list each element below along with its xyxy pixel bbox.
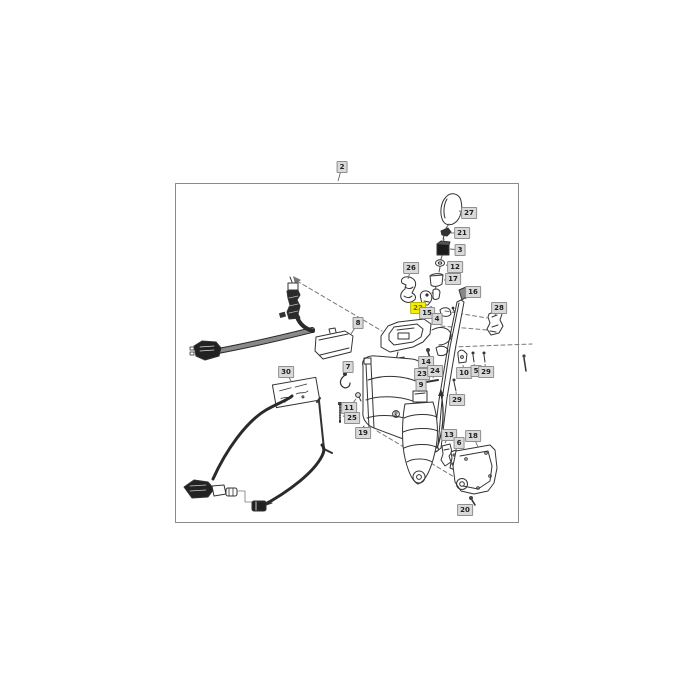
callout-18[interactable]: 18 <box>465 430 481 442</box>
callout-25[interactable]: 25 <box>344 412 360 424</box>
callout-20[interactable]: 20 <box>457 504 473 516</box>
callout-21[interactable]: 21 <box>454 227 470 239</box>
callout-19[interactable]: 19 <box>355 427 371 439</box>
callout-30[interactable]: 30 <box>278 366 294 378</box>
callout-9[interactable]: 9 <box>416 379 427 391</box>
callout-2[interactable]: 2 <box>337 161 348 173</box>
callout-3[interactable]: 3 <box>455 244 466 256</box>
callout-28[interactable]: 28 <box>491 302 507 314</box>
callout-leader-lines <box>0 0 700 700</box>
callout-8[interactable]: 8 <box>353 317 364 329</box>
callout-17[interactable]: 17 <box>445 273 461 285</box>
callout-16[interactable]: 16 <box>465 286 481 298</box>
callout-7[interactable]: 7 <box>343 361 354 373</box>
callout-10[interactable]: 10 <box>456 367 472 379</box>
callout-24[interactable]: 24 <box>427 365 443 377</box>
callout-12[interactable]: 12 <box>447 261 463 273</box>
callout-29[interactable]: 29 <box>478 366 494 378</box>
callout-29[interactable]: 29 <box>449 394 465 406</box>
callout-6[interactable]: 6 <box>454 437 465 449</box>
callout-27[interactable]: 27 <box>461 207 477 219</box>
parts-diagram-page: 2272131217261628221548307142324910529291… <box>0 0 700 700</box>
callout-26[interactable]: 26 <box>403 262 419 274</box>
callout-4[interactable]: 4 <box>432 313 443 325</box>
